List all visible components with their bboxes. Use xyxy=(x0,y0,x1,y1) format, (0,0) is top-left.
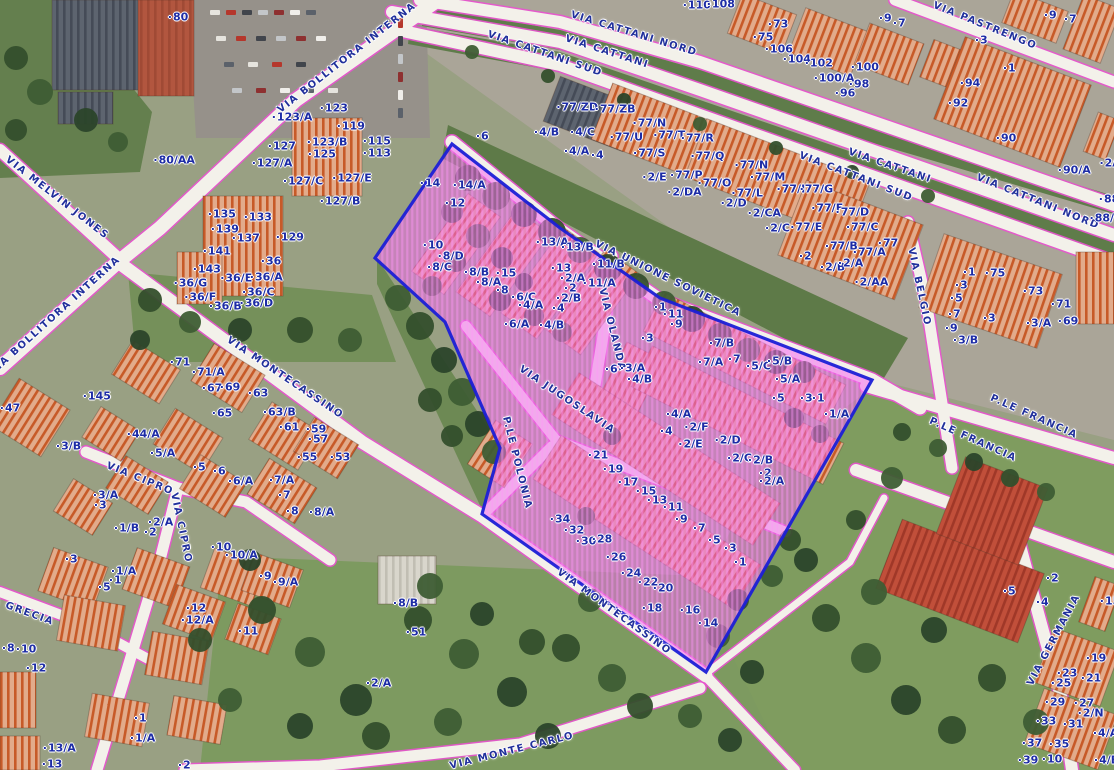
tree xyxy=(1001,469,1019,487)
tree xyxy=(108,132,128,152)
tree xyxy=(921,189,935,203)
tree xyxy=(287,713,313,739)
parked-car xyxy=(290,10,300,15)
building xyxy=(177,252,222,304)
parked-car xyxy=(304,88,314,93)
tree xyxy=(441,425,463,447)
tree xyxy=(338,328,362,352)
parked-car xyxy=(296,36,306,41)
tree xyxy=(881,467,903,489)
tree xyxy=(5,119,27,141)
parked-car xyxy=(210,10,220,15)
building xyxy=(292,118,362,196)
tree xyxy=(434,708,462,736)
parked-car xyxy=(398,90,403,100)
parked-car xyxy=(256,88,266,93)
parked-car xyxy=(398,108,403,118)
parked-car xyxy=(280,88,290,93)
tree xyxy=(812,604,840,632)
building xyxy=(0,736,40,770)
tree xyxy=(138,288,162,312)
tree xyxy=(465,45,479,59)
parked-car xyxy=(316,36,326,41)
parked-car xyxy=(272,62,282,67)
tree xyxy=(130,330,150,350)
building xyxy=(0,672,36,728)
building xyxy=(85,693,150,746)
tree xyxy=(340,684,372,716)
parked-car xyxy=(398,36,403,46)
tree xyxy=(239,549,261,571)
tree xyxy=(965,453,983,471)
tree xyxy=(248,596,276,624)
tree xyxy=(794,548,818,572)
tree xyxy=(740,660,764,684)
tree xyxy=(4,46,28,70)
parked-car xyxy=(226,10,236,15)
tree xyxy=(470,602,494,626)
tree xyxy=(627,693,653,719)
region-parking-lot xyxy=(188,0,430,138)
satellite-map-layer xyxy=(0,0,1114,770)
parked-car xyxy=(398,54,403,64)
tree xyxy=(218,688,242,712)
parked-car xyxy=(248,62,258,67)
tree xyxy=(598,664,626,692)
parked-car xyxy=(258,10,268,15)
tree xyxy=(188,628,212,652)
parked-car xyxy=(242,10,252,15)
map-viewport[interactable]: VIA BOLLITORA INTERNAVIA BOLLITORA INTER… xyxy=(0,0,1114,770)
tree xyxy=(617,93,631,107)
parked-car xyxy=(236,36,246,41)
tree xyxy=(431,347,457,373)
tree xyxy=(845,165,859,179)
tree xyxy=(535,723,561,749)
tree xyxy=(1037,483,1055,501)
tree xyxy=(228,318,252,342)
tree xyxy=(929,439,947,457)
building xyxy=(167,696,227,745)
tree xyxy=(938,716,966,744)
tree xyxy=(497,677,527,707)
tree xyxy=(978,664,1006,692)
tree xyxy=(74,108,98,132)
parked-car xyxy=(256,36,266,41)
tree xyxy=(295,637,325,667)
tree xyxy=(449,639,479,669)
parked-car xyxy=(276,36,286,41)
tree xyxy=(678,704,702,728)
building xyxy=(138,0,194,96)
parked-car xyxy=(328,88,338,93)
tree xyxy=(519,629,545,655)
tree xyxy=(404,606,432,634)
tree xyxy=(718,728,742,752)
tree xyxy=(846,510,866,530)
parked-car xyxy=(398,72,403,82)
parked-car xyxy=(296,62,306,67)
tree xyxy=(693,117,707,131)
tree xyxy=(893,423,911,441)
tree xyxy=(541,69,555,83)
parked-car xyxy=(398,18,403,28)
parked-car xyxy=(224,62,234,67)
tree xyxy=(362,722,390,750)
tree xyxy=(418,388,442,412)
parked-car xyxy=(216,36,226,41)
tree xyxy=(921,617,947,643)
tree xyxy=(1023,709,1049,735)
tree xyxy=(179,311,201,333)
tree xyxy=(552,634,580,662)
parked-car xyxy=(232,88,242,93)
parked-car xyxy=(306,10,316,15)
tree xyxy=(406,312,434,340)
tree xyxy=(851,643,881,673)
parked-car xyxy=(274,10,284,15)
tree xyxy=(27,79,53,105)
tree xyxy=(891,685,921,715)
tree xyxy=(861,579,887,605)
tree xyxy=(769,141,783,155)
building xyxy=(1076,252,1114,324)
tree xyxy=(417,573,443,599)
tree xyxy=(287,317,313,343)
